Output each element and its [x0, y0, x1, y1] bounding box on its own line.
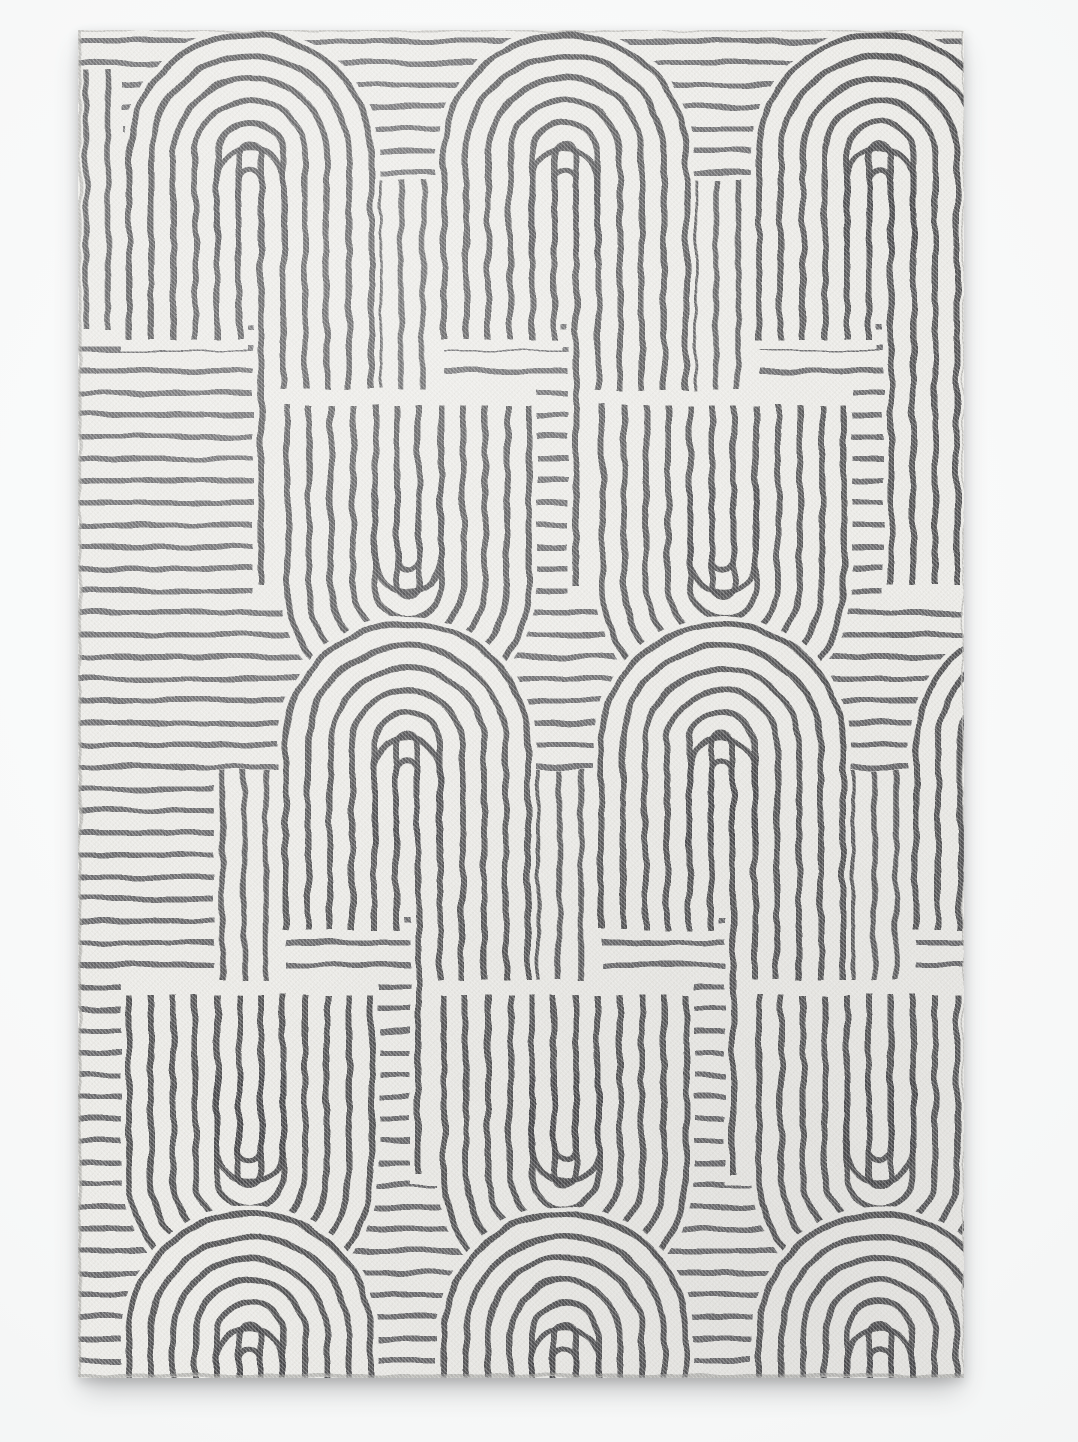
- photo-background: [0, 0, 1078, 1442]
- rug: [78, 30, 964, 1378]
- fabric-grain-overlay: [78, 30, 964, 1378]
- rug-pattern: [78, 30, 964, 1378]
